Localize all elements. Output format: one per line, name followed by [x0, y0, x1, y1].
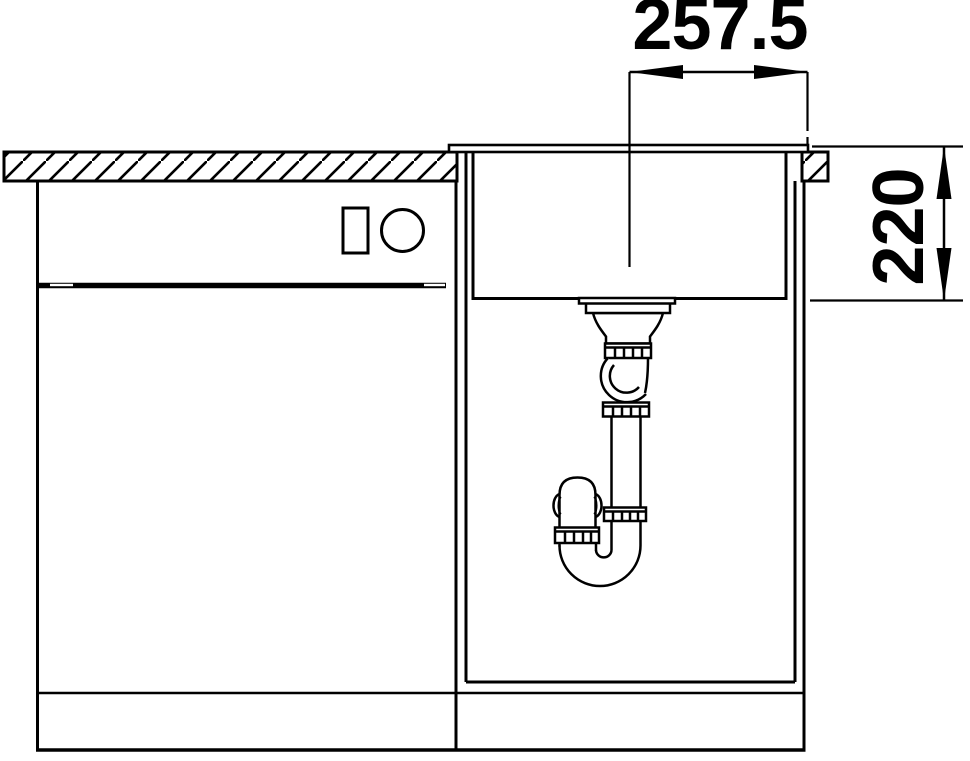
- appliance-control-panel: [343, 208, 368, 253]
- plinth: [36, 693, 806, 750]
- dim-arrow-left: [629, 65, 683, 79]
- left-base-cabinet: [38, 181, 457, 750]
- slip-nut-2: [603, 403, 649, 417]
- drain-outlet-cup: [593, 313, 663, 344]
- technical-drawing: [0, 0, 970, 761]
- horizontal-dimension-label: 257.5: [610, 0, 830, 62]
- drawing-canvas: 257.5 220: [0, 0, 970, 761]
- countertop-left-section: [4, 152, 457, 181]
- tail-pipe: [612, 417, 641, 509]
- u-bend: [560, 543, 641, 586]
- countertop-right-section: [802, 152, 828, 181]
- vertical-dimension-label: 220: [862, 137, 936, 317]
- slip-nut-3: [604, 508, 646, 522]
- drain-siphon: [554, 298, 676, 586]
- sink-base-cabinet: [466, 152, 804, 750]
- cleanout-cap: [554, 478, 602, 529]
- countertop: [4, 152, 828, 181]
- divider-notch-left: [50, 284, 73, 286]
- drain-flange-lip: [579, 298, 675, 304]
- slip-nut-1: [605, 344, 651, 359]
- divider-notch-right: [424, 284, 445, 286]
- appliance-control-knob: [382, 210, 424, 252]
- dim-arrow-right: [754, 65, 808, 79]
- cleanout-nut: [555, 528, 599, 544]
- ball-joint-elbow: [601, 358, 648, 402]
- dimension-drain-offset: [629, 65, 808, 267]
